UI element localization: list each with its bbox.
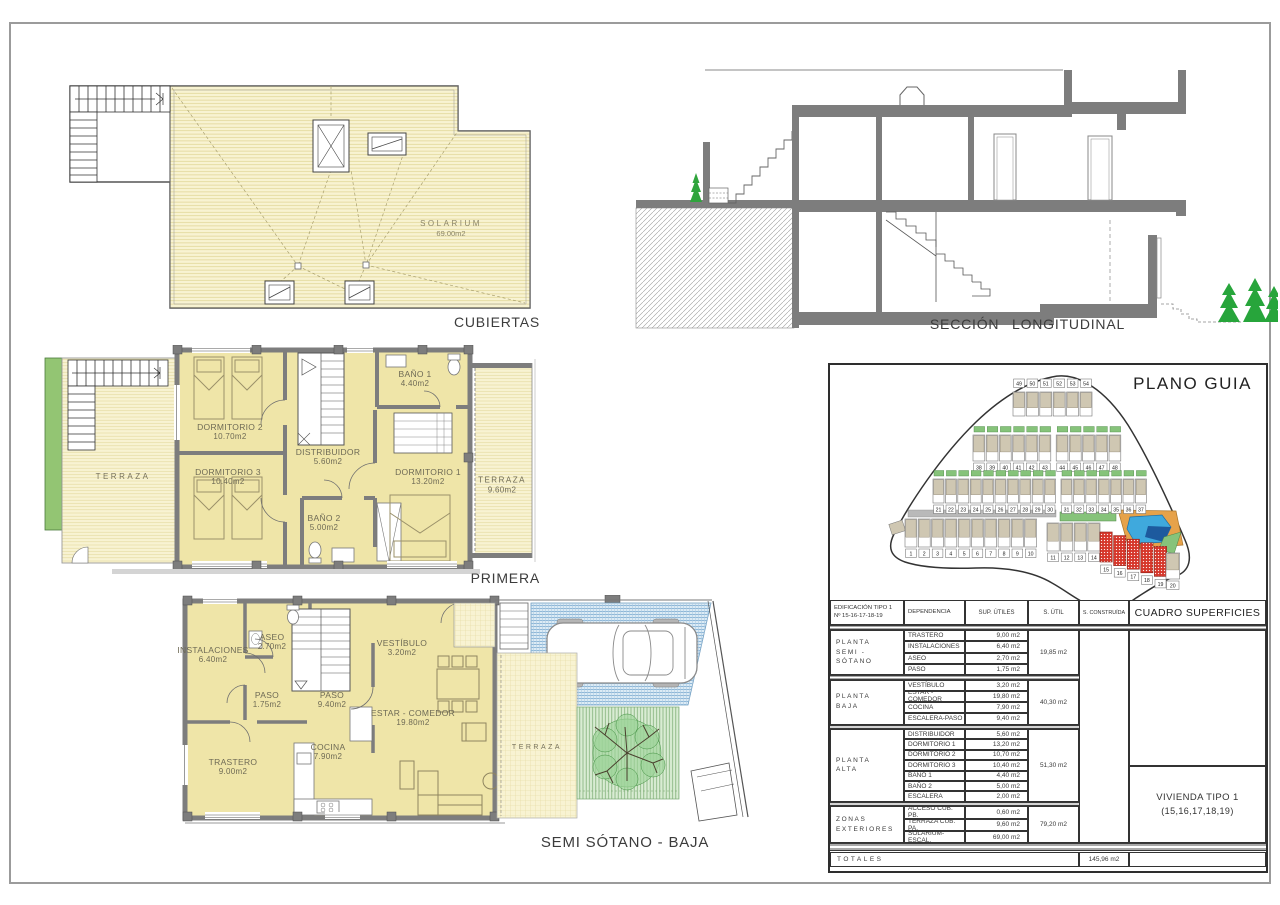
table-header-s-construida: S. CONSTRUÍDA xyxy=(1079,600,1129,625)
room-label: VESTÍBULO3.20m2 xyxy=(377,638,427,658)
trees-icon xyxy=(1218,278,1278,322)
site-plan-drawing: 4950515253543839404142434445464748212223… xyxy=(830,365,1266,601)
garden-strip xyxy=(1057,427,1068,433)
garden-strip xyxy=(1062,471,1072,477)
unit-number: 28 xyxy=(1022,507,1028,513)
table-room-name: DORMITORIO 3 xyxy=(904,760,965,770)
unit-number: 31 xyxy=(1064,507,1070,513)
table-room-name: DISTRIBUIDOR xyxy=(904,729,965,739)
section-drawing xyxy=(628,62,1278,342)
unit-number: 17 xyxy=(1130,575,1136,581)
table-cuadro-empty xyxy=(1129,630,1266,766)
table-room-area: 10,40 m2 xyxy=(965,760,1028,770)
table-room-area: 69,00 m2 xyxy=(965,831,1028,843)
house-unit-highlighted xyxy=(1114,536,1126,566)
garden-strip xyxy=(1136,471,1146,477)
unit-number: 29 xyxy=(1035,507,1041,513)
room-label: DISTRIBUIDOR5.60m2 xyxy=(296,447,361,467)
house-unit-highlighted xyxy=(1127,539,1139,569)
unit-number: 14 xyxy=(1091,555,1097,561)
table-header-cuadro-superficies: CUADRO SUPERFICIES xyxy=(1129,600,1266,625)
section-drawing-svg xyxy=(628,62,1278,342)
entry-porch xyxy=(454,603,495,647)
unit-number: 26 xyxy=(998,507,1004,513)
house-unit-highlighted xyxy=(1141,543,1153,573)
table-room-name: ESTAR - COMEDOR xyxy=(904,691,965,702)
roof-plan-title: CUBIERTAS xyxy=(432,314,540,330)
table-room-name: SOLARIUM-ESCAL. xyxy=(904,831,965,843)
table-room-area: 9,60 m2 xyxy=(965,819,1028,831)
table-room-name: BAÑO 1 xyxy=(904,771,965,781)
unit-number: 20 xyxy=(1170,583,1176,589)
garden-strip xyxy=(987,427,998,433)
room-label: COCINA7.90m2 xyxy=(311,742,346,762)
unit-number: 15 xyxy=(1103,567,1109,573)
unit-number: 49 xyxy=(1016,381,1022,387)
garden-strip xyxy=(959,471,969,477)
terrace-right xyxy=(470,359,535,562)
garden-strip xyxy=(1112,471,1122,477)
garden-strip xyxy=(1014,427,1025,433)
unit-number: 19 xyxy=(1158,582,1164,588)
table-group-subtotal: 51,30 m2 xyxy=(1028,729,1079,802)
table-group-subtotal: 79,20 m2 xyxy=(1028,806,1079,843)
garden-strip xyxy=(1008,471,1018,477)
unit-number: 23 xyxy=(960,507,966,513)
table-bottom-right-empty xyxy=(1129,852,1266,868)
table-room-area: 1,75 m2 xyxy=(965,664,1028,675)
garden-strip xyxy=(1070,427,1081,433)
unit-number: 32 xyxy=(1076,507,1082,513)
solarium-roof-surface xyxy=(170,86,530,308)
table-room-name: TERRAZA CUB. PA. xyxy=(904,819,965,831)
garden-strip xyxy=(971,471,981,477)
unit-number: 16 xyxy=(1117,571,1123,577)
section-doors xyxy=(994,134,1112,200)
table-room-area: 9,00 m2 xyxy=(965,630,1028,641)
exterior-stair xyxy=(500,603,528,649)
closet-stairs xyxy=(394,413,452,453)
unit-number: 54 xyxy=(1083,381,1089,387)
table-room-name: DORMITORIO 2 xyxy=(904,750,965,760)
room-label: BAÑO 25.00m2 xyxy=(308,513,341,533)
unit-number: 9 xyxy=(1016,551,1019,557)
table-room-name: COCINA xyxy=(904,702,965,713)
first-floor-drawing xyxy=(42,345,537,590)
unit-number: 11 xyxy=(1050,555,1055,561)
terrace xyxy=(497,653,577,818)
unit-number: 52 xyxy=(1056,381,1062,387)
garden-strip xyxy=(946,471,956,477)
unit-number: 2 xyxy=(923,551,926,557)
section-title: SECCIÓN LONGITUDINAL xyxy=(905,316,1150,332)
unit-number: 24 xyxy=(973,507,979,513)
table-room-name: TRASTERO xyxy=(904,630,965,641)
table-room-name: ESCALERA-PASO xyxy=(904,713,965,724)
unit-number: 1 xyxy=(910,551,913,557)
unit-number: 27 xyxy=(1010,507,1016,513)
table-room-name: DORMITORIO 1 xyxy=(904,739,965,749)
garden-strip xyxy=(1087,471,1097,477)
unit-number: 51 xyxy=(1043,381,1049,387)
garden-strip xyxy=(1097,427,1108,433)
table-room-name: VESTÍBULO xyxy=(904,680,965,691)
unit-number: 50 xyxy=(1030,381,1036,387)
unit-number: 8 xyxy=(1003,551,1006,557)
unit-number: 7 xyxy=(989,551,992,557)
table-room-area: 3,20 m2 xyxy=(965,680,1028,691)
table-separator xyxy=(830,802,1079,807)
table-room-area: 2,70 m2 xyxy=(965,653,1028,664)
table-room-area: 6,40 m2 xyxy=(965,641,1028,652)
table-room-area: 0,60 m2 xyxy=(965,806,1028,818)
table-total-constructed: 145,96 m2 xyxy=(1079,852,1129,868)
table-group-label: ZONAS EXTERIORES xyxy=(830,806,904,843)
table-room-name: BAÑO 2 xyxy=(904,781,965,791)
table-room-name: ACCESO CUB. PB. xyxy=(904,806,965,818)
garden-strip xyxy=(1099,471,1109,477)
garden-strip xyxy=(934,471,944,477)
room-label: BAÑO 14.40m2 xyxy=(399,369,432,389)
solarium-area: 69.00m2 xyxy=(436,229,465,238)
table-header-edificacion: EDIFICACIÓN TIPO 1 Nº 15-16-17-18-19 xyxy=(830,600,904,625)
table-header-sup-utiles: SUP. ÚTILES xyxy=(965,600,1028,625)
site-plan-panel: PLANO GUIA 49505152535438394041424344454… xyxy=(828,363,1268,873)
surface-table: EDIFICACIÓN TIPO 1 Nº 15-16-17-18-19DEPE… xyxy=(830,600,1266,867)
unit-number: 30 xyxy=(1047,507,1053,513)
room-label: ASEO2.70m2 xyxy=(258,632,286,652)
table-room-area: 13,20 m2 xyxy=(965,739,1028,749)
unit-number: 6 xyxy=(976,551,979,557)
room-label: TERRAZA xyxy=(96,472,151,482)
unit-number: 12 xyxy=(1064,555,1070,561)
unit-number: 4 xyxy=(949,551,952,557)
stairwell xyxy=(298,353,344,445)
table-room-area: 5,60 m2 xyxy=(965,729,1028,739)
garden-strip xyxy=(1021,471,1031,477)
unit-number: 36 xyxy=(1126,507,1132,513)
table-room-area: 7,90 m2 xyxy=(965,702,1028,713)
stairwell xyxy=(292,609,350,691)
table-room-name: ESCALERA xyxy=(904,791,965,801)
garden-strip xyxy=(1040,427,1051,433)
table-room-name: PASO xyxy=(904,664,965,675)
ground-hatch xyxy=(636,208,794,328)
table-room-area: 19,80 m2 xyxy=(965,691,1028,702)
ground-floor-drawing xyxy=(175,595,755,835)
room-label: PASO9.40m2 xyxy=(318,690,346,710)
room-label: TERRAZA9.60m2 xyxy=(478,475,526,494)
table-room-area: 4,40 m2 xyxy=(965,771,1028,781)
table-room-area: 10,70 m2 xyxy=(965,750,1028,760)
tree-icon xyxy=(690,173,702,202)
house-unit-highlighted xyxy=(1100,532,1112,562)
table-group-subtotal: 40,30 m2 xyxy=(1028,680,1079,725)
room-label: DORMITORIO 210.70m2 xyxy=(197,422,263,442)
room-label: ESTAR - COMEDOR19.80m2 xyxy=(371,708,455,728)
unit-number: 18 xyxy=(1144,578,1150,584)
unit-number: 37 xyxy=(1138,507,1144,513)
unit-number: 21 xyxy=(936,507,942,513)
table-vivienda-cell: VIVIENDA TIPO 1(15,16,17,18,19) xyxy=(1129,766,1266,843)
table-constructed-column xyxy=(1079,630,1129,843)
section-stair-left xyxy=(728,131,792,203)
table-separator xyxy=(830,725,1079,730)
drawing-sheet: SOLARIUM 69.00m2 CUBIERTAS xyxy=(0,0,1280,905)
room-label: DORMITORIO 113.20m2 xyxy=(395,467,461,487)
room-label: TRASTERO9.00m2 xyxy=(209,757,258,777)
table-room-area: 5,00 m2 xyxy=(965,781,1028,791)
unit-number: 35 xyxy=(1113,507,1119,513)
unit-number: 10 xyxy=(1028,551,1034,557)
section-interior-stairs xyxy=(886,212,990,302)
garden-strip xyxy=(1000,427,1011,433)
table-totales-label: TOTALES xyxy=(830,852,1079,868)
table-room-name: ASEO xyxy=(904,653,965,664)
unit-number: 34 xyxy=(1101,507,1107,513)
garden-strip xyxy=(1046,471,1056,477)
ground-floor-plan: INSTALACIONES6.40m2 ASEO2.70m2 PASO1.75m… xyxy=(175,595,755,853)
table-group-label: PLANTA ALTA xyxy=(830,729,904,802)
unit-number: 13 xyxy=(1077,555,1083,561)
garden-strip xyxy=(1027,427,1038,433)
table-room-area: 9,40 m2 xyxy=(965,713,1028,724)
room-label: DORMITORIO 310.40m2 xyxy=(195,467,261,487)
table-group-label: PLANTA SEMI - SÓTANO xyxy=(830,630,904,675)
vivienda-units-label: (15,16,17,18,19) xyxy=(1161,805,1233,819)
unit-number: 33 xyxy=(1088,507,1094,513)
room-label: INSTALACIONES6.40m2 xyxy=(177,645,248,665)
room-label: PASO1.75m2 xyxy=(253,690,281,710)
garden-strip xyxy=(1033,471,1043,477)
first-floor-plan: DORMITORIO 210.70m2 DORMITORIO 310.40m2 … xyxy=(42,345,537,590)
unit-number: 25 xyxy=(985,507,991,513)
garden-strip xyxy=(996,471,1006,477)
roof-plan-drawing: SOLARIUM 69.00m2 xyxy=(55,78,545,328)
table-separator xyxy=(830,843,1266,851)
garden-strip xyxy=(1124,471,1134,477)
table-group-label: PLANTA BAJA xyxy=(830,680,904,725)
garden-strip xyxy=(984,471,994,477)
unit-number: 22 xyxy=(948,507,954,513)
first-floor-title: PRIMERA xyxy=(440,570,540,586)
solarium-name: SOLARIUM xyxy=(420,219,482,228)
green-strip xyxy=(45,358,62,530)
room-label: TERRAZA xyxy=(512,744,562,752)
garden-strip xyxy=(1074,471,1084,477)
unit-number: 5 xyxy=(963,551,966,557)
lower-floor-edge xyxy=(112,569,480,574)
table-room-name: INSTALACIONES xyxy=(904,641,965,652)
table-group-subtotal: 19,85 m2 xyxy=(1028,630,1079,675)
unit-number: 53 xyxy=(1070,381,1076,387)
vivienda-tipo-label: VIVIENDA TIPO 1 xyxy=(1156,791,1238,805)
table-room-area: 2,00 m2 xyxy=(965,791,1028,801)
garden-strip xyxy=(1110,427,1121,433)
roof-plan: SOLARIUM 69.00m2 xyxy=(55,78,545,328)
table-header-dependencia: DEPENDENCIA xyxy=(904,600,965,625)
garden-strip xyxy=(974,427,985,433)
garden-strip xyxy=(1084,427,1095,433)
table-header-s-util: S. ÚTIL xyxy=(1028,600,1079,625)
ground-floor-title: SEMI SÓTANO - BAJA xyxy=(530,834,720,851)
house-unit-highlighted xyxy=(1154,546,1166,576)
table-separator xyxy=(830,675,1079,680)
unit-number: 3 xyxy=(936,551,939,557)
